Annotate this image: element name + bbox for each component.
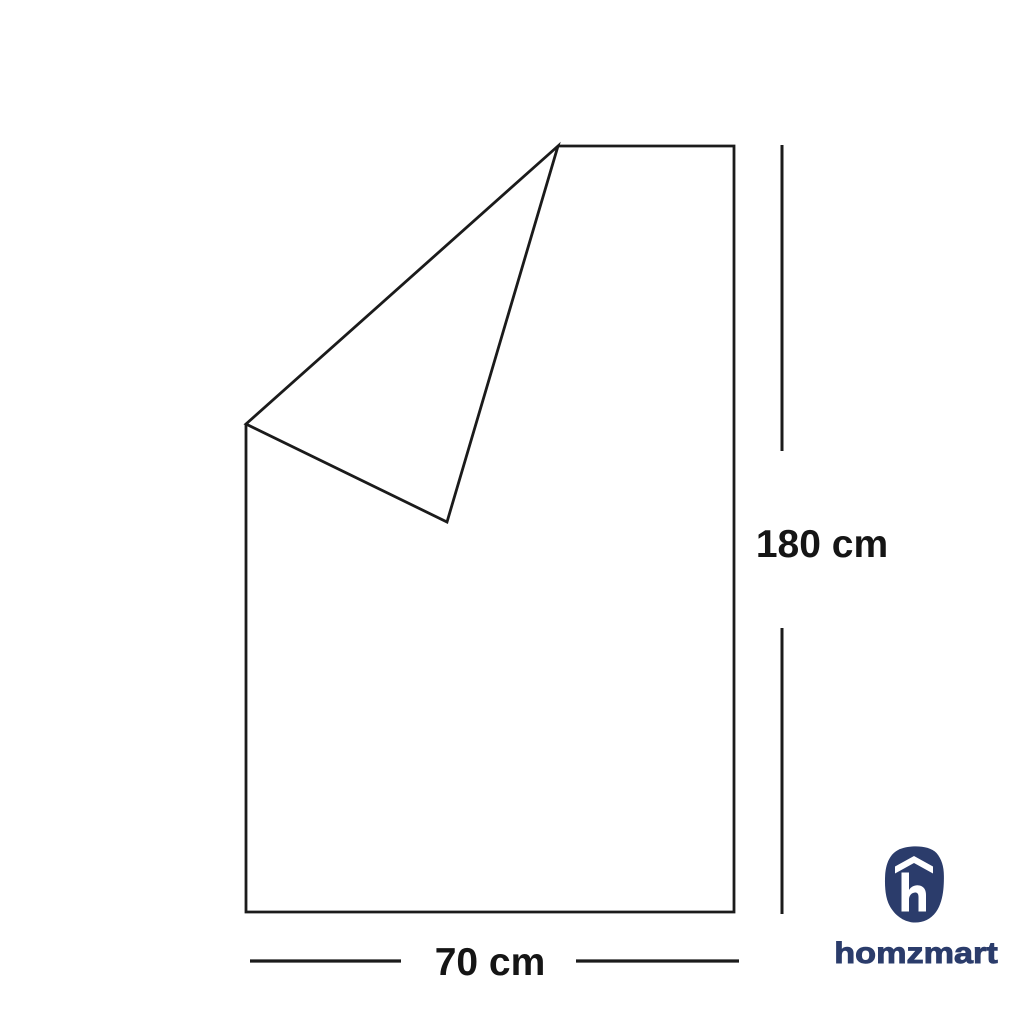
- svg-text:70 cm: 70 cm: [435, 941, 546, 984]
- svg-text:180 cm: 180 cm: [756, 523, 888, 566]
- svg-text:homzmart: homzmart: [834, 936, 998, 969]
